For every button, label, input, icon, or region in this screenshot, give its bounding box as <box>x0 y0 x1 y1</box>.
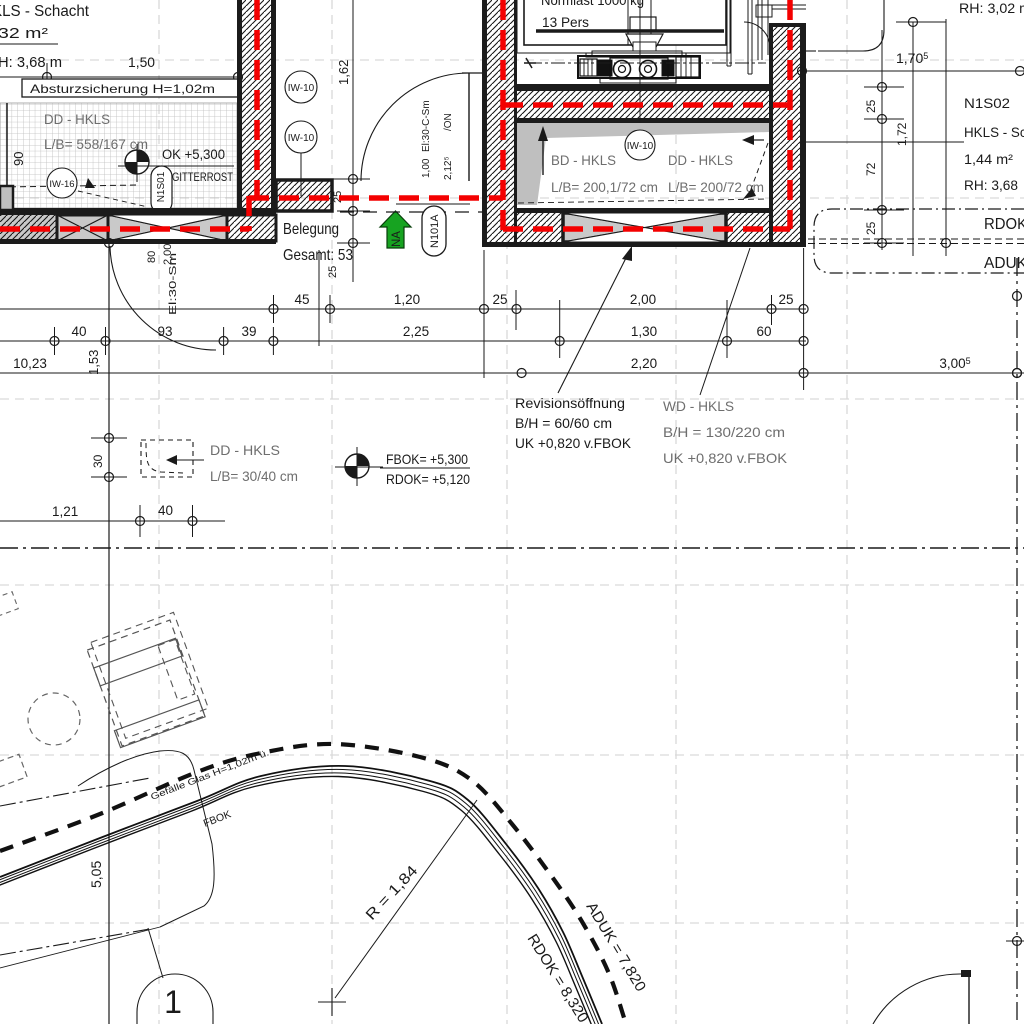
svg-text:IW-10: IW-10 <box>288 83 315 94</box>
svg-text:BD - HKLS: BD - HKLS <box>551 152 616 168</box>
svg-text:2,00: 2,00 <box>630 292 656 307</box>
svg-text:2,12⁵: 2,12⁵ <box>443 156 454 180</box>
svg-text:L/B= 558/167 cm: L/B= 558/167 cm <box>44 136 148 152</box>
svg-text:1,20: 1,20 <box>394 292 420 307</box>
svg-text:B/H = 130/220 cm: B/H = 130/220 cm <box>663 424 785 440</box>
svg-text:25: 25 <box>327 266 339 278</box>
svg-text:13 Pers: 13 Pers <box>542 14 589 30</box>
svg-text:2,20: 2,20 <box>631 356 657 371</box>
svg-text:IW-10: IW-10 <box>627 141 654 152</box>
svg-text:Gesamt: 53: Gesamt: 53 <box>283 247 353 264</box>
svg-text:UK +0,820 v.FBOK: UK +0,820 v.FBOK <box>663 450 788 466</box>
svg-text:10,23: 10,23 <box>13 356 47 371</box>
svg-text:1,44 m²: 1,44 m² <box>964 151 1013 167</box>
svg-text:L/B= 30/40 cm: L/B= 30/40 cm <box>210 468 298 484</box>
svg-text:FBOK= +5,300: FBOK= +5,300 <box>386 451 468 467</box>
svg-text:DD - HKLS: DD - HKLS <box>44 111 110 127</box>
svg-text:32 m²: 32 m² <box>0 26 48 42</box>
svg-text:1,72: 1,72 <box>895 122 909 146</box>
svg-text:39: 39 <box>241 324 256 339</box>
svg-text:1,50: 1,50 <box>128 54 155 70</box>
svg-text:Belegung: Belegung <box>283 221 339 238</box>
svg-text:1,53: 1,53 <box>86 350 101 375</box>
svg-text:L/B= 200,1/72 cm: L/B= 200,1/72 cm <box>551 179 658 195</box>
svg-text:OK +5,300: OK +5,300 <box>162 147 225 162</box>
svg-text:IW-16: IW-16 <box>49 179 74 190</box>
svg-text:45: 45 <box>294 292 309 307</box>
svg-text:GITTERROST: GITTERROST <box>172 172 233 184</box>
svg-text:93: 93 <box>157 324 172 339</box>
svg-text:Absturzsicherung H=1,02m: Absturzsicherung H=1,02m <box>30 82 215 96</box>
svg-text:40: 40 <box>158 503 173 518</box>
svg-text:25: 25 <box>778 292 793 307</box>
svg-text:B/H = 60/60 cm: B/H = 60/60 cm <box>515 415 612 431</box>
svg-text:RH: 3,02 m: RH: 3,02 m <box>959 0 1024 16</box>
svg-text:72: 72 <box>864 162 878 176</box>
svg-text:KLS - Schacht: KLS - Schacht <box>0 3 90 20</box>
svg-text:N101A: N101A <box>429 214 441 248</box>
svg-text:80: 80 <box>146 251 158 263</box>
svg-text:1,00: 1,00 <box>421 158 432 178</box>
svg-text:1,21: 1,21 <box>52 504 78 519</box>
svg-text:IW-10: IW-10 <box>288 133 315 144</box>
svg-text:HKLS - Sch: HKLS - Sch <box>964 124 1024 140</box>
svg-text:UK +0,820 v.FBOK: UK +0,820 v.FBOK <box>515 435 632 451</box>
svg-text:60: 60 <box>756 324 771 339</box>
svg-text:DD - HKLS: DD - HKLS <box>210 442 280 458</box>
svg-text:30: 30 <box>91 454 105 468</box>
svg-text:25: 25 <box>864 221 878 235</box>
svg-text:2,25: 2,25 <box>403 324 429 339</box>
svg-text:RDOK= +5,120: RDOK= +5,120 <box>386 471 470 487</box>
svg-text:1: 1 <box>164 984 182 1020</box>
svg-text:N1S01: N1S01 <box>156 171 167 202</box>
svg-text:NA: NA <box>391 231 403 247</box>
svg-text:El:30-C-Sm: El:30-C-Sm <box>421 100 432 152</box>
svg-text:Revisionsöffnung: Revisionsöffnung <box>515 395 625 411</box>
svg-text:25: 25 <box>492 292 507 307</box>
svg-text:H: 3,68 m: H: 3,68 m <box>0 55 62 71</box>
svg-text:DD - HKLS: DD - HKLS <box>668 152 733 168</box>
svg-text:El:30-Sm: El:30-Sm <box>168 253 179 315</box>
svg-text:N1S02: N1S02 <box>964 95 1010 111</box>
svg-text:ADUK: ADUK <box>984 255 1024 272</box>
svg-text:40: 40 <box>71 324 86 339</box>
svg-text:5,05: 5,05 <box>88 861 104 888</box>
svg-text:/ON: /ON <box>443 113 454 131</box>
svg-text:1,30: 1,30 <box>631 324 657 339</box>
svg-text:RH: 3,68: RH: 3,68 <box>964 177 1018 193</box>
svg-text:Normlast 1000 kg: Normlast 1000 kg <box>541 0 644 8</box>
svg-text:WD - HKLS: WD - HKLS <box>663 398 734 414</box>
svg-text:25: 25 <box>864 99 878 113</box>
svg-text:90: 90 <box>11 152 26 166</box>
svg-text:1,62: 1,62 <box>336 60 351 85</box>
svg-text:RDOK: RDOK <box>984 216 1024 233</box>
